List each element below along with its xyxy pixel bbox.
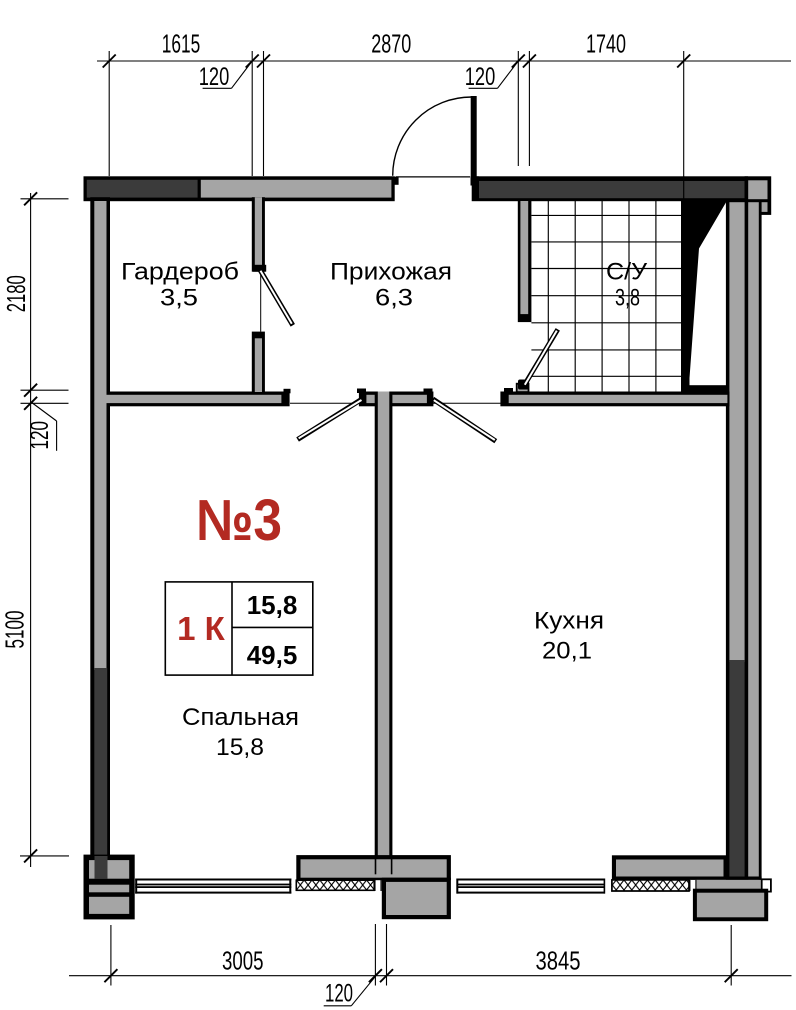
svg-text:3005: 3005 — [222, 945, 264, 975]
svg-text:120: 120 — [26, 421, 54, 450]
svg-text:120: 120 — [465, 63, 496, 91]
svg-text:15,8: 15,8 — [216, 734, 264, 761]
svg-text:Спальная: Спальная — [182, 704, 299, 731]
svg-text:1615: 1615 — [162, 29, 201, 59]
svg-text:Кухня: Кухня — [534, 608, 604, 635]
svg-text:2180: 2180 — [1, 275, 31, 312]
svg-text:1 К: 1 К — [177, 610, 226, 647]
svg-text:20,1: 20,1 — [542, 637, 592, 664]
svg-text:3845: 3845 — [536, 945, 581, 975]
svg-text:Гардероб: Гардероб — [121, 258, 239, 285]
svg-text:2870: 2870 — [371, 29, 411, 59]
svg-text:С/У: С/У — [606, 258, 648, 285]
svg-text:120: 120 — [325, 980, 353, 1008]
svg-text:120: 120 — [199, 63, 230, 91]
svg-text:1740: 1740 — [586, 29, 626, 59]
svg-text:15,8: 15,8 — [247, 590, 298, 620]
svg-text:5100: 5100 — [0, 611, 30, 649]
svg-text:Прихожая: Прихожая — [330, 258, 452, 285]
svg-text:6,3: 6,3 — [375, 285, 413, 312]
svg-text:3,5: 3,5 — [160, 285, 198, 312]
svg-text:3,8: 3,8 — [615, 285, 640, 312]
svg-text:49,5: 49,5 — [247, 640, 298, 670]
svg-text:№3: №3 — [196, 488, 282, 553]
